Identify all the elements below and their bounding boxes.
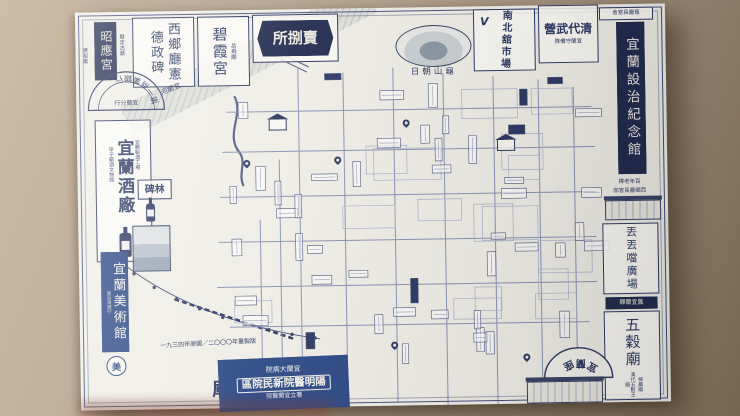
bank-branch-label: 行分蘭宜 [114, 99, 138, 107]
memorial-hall-label: 宜蘭設治紀念館 [616, 22, 646, 174]
table-edge-blur [80, 401, 330, 416]
bixia-temple-box: 岳飛廟 碧霞宮 [197, 16, 250, 87]
qing-camp-note: 隊備守蘭宜 [555, 38, 583, 44]
gate-photo-illustration [132, 225, 171, 272]
theater-building-illustration [527, 380, 603, 403]
qing-wugu-note: 清代五穀王廟 [623, 371, 634, 397]
old-station-label: 驛蘭宜舊 [605, 297, 657, 310]
hospital-note: 院醫蘭宜立署 [266, 393, 302, 401]
yuefei-temple-note: 岳飛廟 [230, 43, 236, 60]
market-box: V 南北舘市場 [473, 8, 536, 71]
urisabaki-office-label: 所捌賣 [257, 20, 334, 57]
winery-label: 宜蘭酒廠 [113, 125, 133, 229]
art-museum-note: 舊台灣銀行 [105, 291, 110, 314]
temple-illustration [269, 119, 287, 130]
zhaoying-heritage-note: 縣定古蹟 [118, 24, 125, 66]
bank-stamp: 第一商業銀行 行分蘭宜 [84, 61, 169, 114]
memorial-building-illustration [605, 199, 661, 220]
wugu-temple-label: 五穀廟 [623, 313, 640, 371]
memorial-header-note: 舍官長廳舊 [599, 7, 653, 21]
market-label: 南北舘市場 [498, 10, 511, 70]
map-poster: 媽祖廟 昭應宮 縣定古蹟 西鄉廳憲 德政碑 岳飛廟 碧霞宮 所捌賣 日朝山龜 V… [75, 3, 671, 410]
urisabaki-outer-box: 所捌賣 [252, 14, 339, 63]
temple-illustration [497, 140, 515, 151]
hospital-old-name: 院病大蘭宜 [266, 366, 301, 375]
qing-camp-box: 營武代清 隊備守蘭宜 [538, 4, 599, 63]
art-museum-label: 宜蘭美術館 [110, 262, 126, 342]
diudiudang-plaza-label: 丟丟噹廣場 [602, 223, 659, 295]
beilin-label: 碑林 [138, 179, 172, 200]
qing-camp-label: 營武代清 [544, 23, 592, 37]
hospital-main-label: 區院民新院醫明陽 [236, 374, 331, 393]
bixia-temple-label: 碧霞宮 [211, 26, 228, 77]
shennong-note: 神農廟 [636, 371, 642, 397]
theater-badge: 宜蘭座 [540, 344, 617, 379]
art-museum-box: 宜蘭美術館 舊台灣銀行 [101, 252, 130, 352]
turtle-island-caption: 日朝山龜 [394, 66, 474, 79]
v-logo-icon: V [480, 16, 489, 28]
winery-note-right: 宜蘭製酒工場 [133, 125, 139, 185]
small-bottle-icon [146, 203, 155, 221]
